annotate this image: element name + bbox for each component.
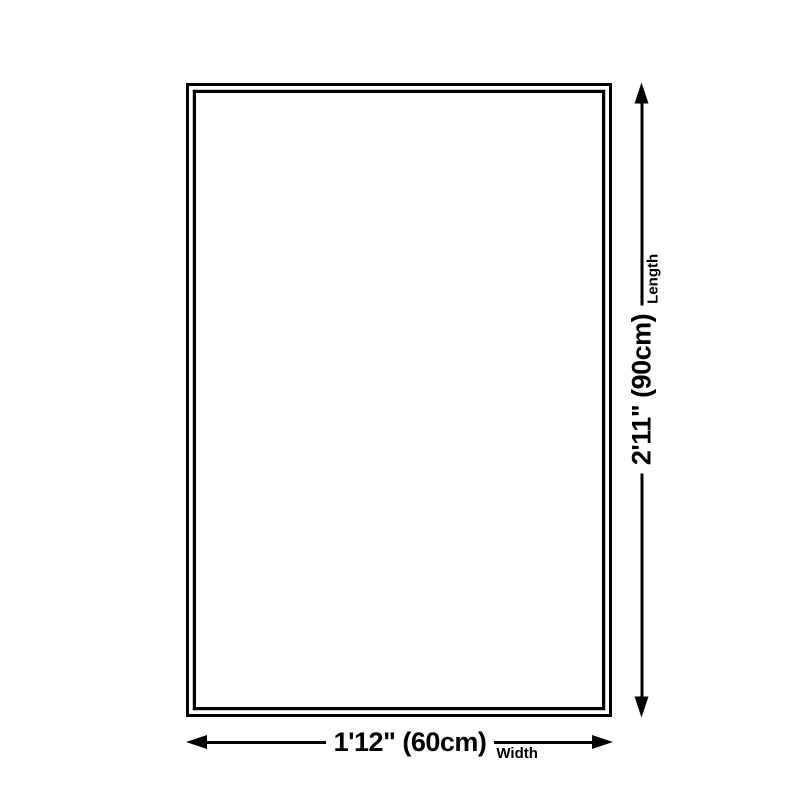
length-dimension-line-bottom [640, 473, 643, 696]
arrow-down-icon [635, 697, 649, 718]
dimension-diagram: 1'12" (60cm) Width 2'11" (90cm) Length [0, 0, 800, 800]
product-outline-inner [193, 90, 605, 710]
width-label: Width [496, 746, 538, 761]
product-outline [186, 83, 612, 717]
arrow-right-icon [592, 735, 613, 749]
length-dimension-tail: Length [620, 82, 664, 305]
length-label: Length [646, 254, 661, 304]
width-dimension-tail: Width [494, 720, 613, 764]
length-dimension-arrow: 2'11" (90cm) Length [620, 83, 664, 718]
arrow-up-icon [635, 82, 649, 103]
length-value: 2'11" (90cm) [628, 306, 655, 473]
arrow-left-icon [186, 735, 207, 749]
width-dimension-line-right [494, 741, 592, 744]
width-dimension-line-left [207, 741, 326, 744]
width-value: 1'12" (60cm) [326, 729, 495, 756]
length-dimension-line-top [640, 103, 643, 305]
width-dimension-arrow: 1'12" (60cm) Width [186, 720, 613, 764]
